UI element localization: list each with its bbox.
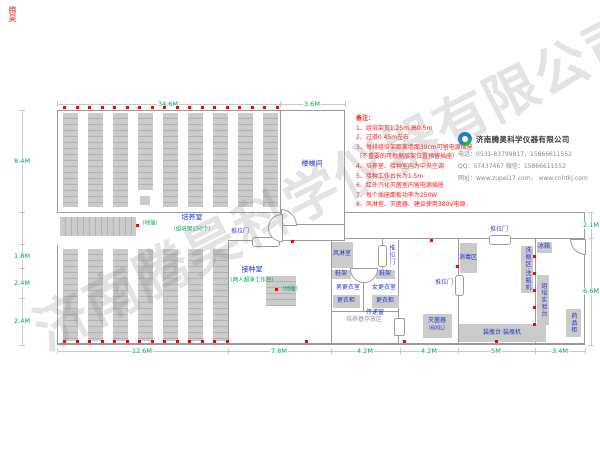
label-fridge: 冰箱: [538, 244, 550, 250]
power-outlet-dot: [495, 340, 498, 343]
wall: [228, 240, 345, 241]
room-sublabel-cultivation: （组培架150个）: [170, 227, 214, 233]
swing-door-arc: [350, 268, 378, 283]
power-outlet-dot: [201, 340, 204, 343]
shelf-rack: [113, 113, 128, 207]
wall: [57, 245, 58, 345]
power-outlet-dot: [188, 340, 191, 343]
label-floor-socket: （地插）: [139, 221, 161, 227]
power-outlet-dot: [533, 306, 536, 309]
power-outlet-dot: [291, 240, 294, 243]
sliding-door: [455, 275, 464, 296]
shelf-rack: [213, 249, 228, 341]
sliding-door: [489, 235, 511, 245]
dimension-line: [57, 104, 345, 105]
company-name: 济南腾昊科学仪器有限公司: [476, 134, 570, 145]
label-bottling-bench: 装瓶台·装瓶机: [483, 330, 521, 336]
dimension-tick: [19, 268, 25, 269]
floor-plan-canvas: 济南腾昊科学仪器有限公司 腾昊 34.6M 3.6M 8.4M: [0, 0, 600, 450]
label-disinfection-area: 消毒区: [459, 255, 477, 261]
wall: [363, 280, 364, 311]
power-outlet-dot: [275, 288, 278, 291]
room-label-air-shower: 风淋室: [333, 251, 351, 257]
power-outlet-dot: [430, 239, 433, 242]
dimension-tick: [345, 101, 346, 107]
swing-door-arc: [570, 239, 586, 255]
dimension-tick: [458, 348, 459, 354]
room-label-cultivation: 培养室: [182, 215, 203, 222]
note-line: 6、红外汽化灭菌室内留电源插座: [356, 183, 482, 189]
shelf-rack: [88, 249, 103, 341]
dimension-tick: [280, 101, 281, 107]
room-sublabel-inoculation: （两人超净工作台）: [227, 278, 277, 284]
corner-red-mark: 腾昊: [7, 6, 18, 22]
power-outlet-dot: [101, 340, 104, 343]
shelf-rack: [88, 113, 103, 207]
wall: [57, 343, 585, 345]
shelf-rack: [188, 113, 203, 207]
shelf-rack: [238, 113, 253, 207]
label-sliding-door: 推拉门: [435, 280, 453, 286]
note-line: 8、风淋室、灭菌器、建议使用380V电源.: [356, 202, 482, 208]
room-label-stairwell: 楼梯间: [302, 161, 323, 168]
power-outlet-dot: [403, 340, 406, 343]
power-outlet-dot: [533, 323, 536, 326]
dimension-tick: [588, 212, 594, 213]
room-label-inoculation: 接种室: [242, 267, 263, 274]
dim-label: 2.4M: [13, 280, 31, 287]
power-outlet-dot: [138, 340, 141, 343]
power-outlet-dot: [101, 106, 104, 109]
power-outlet-dot: [251, 106, 254, 109]
note-line: 7、每个插座面板功率为250W: [356, 193, 482, 199]
wall: [57, 110, 345, 111]
power-outlet-dot: [276, 106, 279, 109]
power-outlet-dot: [533, 272, 536, 275]
label-locker: 更衣柜: [337, 298, 355, 304]
company-qq-wechat: QQ：57437467 微信：15866611552: [458, 164, 590, 170]
dim-label: 2.4M: [13, 318, 31, 325]
label-sterilizer-spec: （600L）: [426, 327, 448, 332]
power-outlet-dot: [126, 106, 129, 109]
wall: [228, 240, 229, 344]
company-logo-icon: [458, 132, 472, 146]
dim-label: 3.6M: [303, 101, 321, 108]
wall-stairwell: [280, 110, 281, 225]
power-outlet-dot: [176, 106, 179, 109]
power-outlet-dot: [63, 106, 66, 109]
power-outlet-dot: [263, 106, 266, 109]
shelf-rack: [163, 113, 178, 207]
label-floor-socket: （地插）: [279, 287, 301, 293]
label-shoe-rack: 鞋架: [379, 271, 391, 277]
label-sliding-door: 推拉门: [388, 245, 394, 266]
dimension-tick: [331, 348, 332, 354]
label-sliding-door: 推拉门: [231, 229, 249, 235]
dim-label: 5M: [490, 348, 502, 355]
power-outlet-dot: [88, 106, 91, 109]
label-locker: 更衣柜: [376, 298, 394, 304]
power-outlet-dot: [113, 340, 116, 343]
power-outlet-dot: [63, 340, 66, 343]
wall: [584, 212, 585, 345]
label-bottle-washing: 洗瓶区·洗瓶机: [524, 247, 530, 292]
label-sterilizer: 灭菌器: [428, 318, 446, 324]
notes-title: 备注：: [356, 116, 482, 122]
power-outlet-dot: [533, 289, 536, 292]
power-outlet-dot: [113, 106, 116, 109]
dimension-tick: [400, 348, 401, 354]
dimension-tick: [535, 348, 536, 354]
power-outlet-dot: [305, 340, 308, 343]
shelf-rack: [63, 113, 78, 207]
wall: [57, 212, 281, 213]
company-phone: 电话：0531-83799817，15866611552: [458, 152, 590, 158]
dimension-tick: [19, 244, 25, 245]
dim-label: 3.4M: [551, 348, 569, 355]
wall-stairwell: [344, 110, 345, 241]
power-outlet-dot: [188, 106, 191, 109]
dimension-tick: [57, 101, 58, 107]
power-outlet-dot: [76, 106, 79, 109]
power-outlet-dot: [76, 340, 79, 343]
dim-label: 4.2M: [420, 348, 438, 355]
power-outlet-dot: [226, 106, 229, 109]
power-outlet-dot: [136, 224, 139, 227]
swing-door-arc: [281, 209, 297, 226]
shelf-rack: [138, 249, 153, 341]
power-outlet-dot: [176, 340, 179, 343]
company-watermark: 济南腾昊科学仪器有限公司: [18, 0, 600, 365]
label-tc-bench: 组培实验台: [540, 283, 546, 318]
dimension-tick: [585, 348, 586, 354]
dimension-tick: [57, 348, 58, 354]
dimension-line: [22, 110, 23, 345]
power-outlet-dot: [163, 340, 166, 343]
label-medium-storage: 培养基存放区: [346, 317, 382, 323]
dim-label: 6.6M: [582, 288, 600, 295]
dim-label: 2.1M: [582, 222, 600, 229]
dimension-line: [591, 212, 592, 345]
sliding-door: [378, 245, 387, 267]
dimension-tick: [588, 238, 594, 239]
power-outlet-dot: [456, 265, 459, 268]
dimension-tick: [19, 212, 25, 213]
pass-window-box: [394, 318, 405, 336]
room-label-womens-changing: 女更衣室: [372, 285, 396, 291]
power-outlet-dot: [226, 340, 229, 343]
shelf-rack: [113, 249, 128, 341]
wall: [345, 238, 584, 239]
shelf-rack: [263, 113, 278, 207]
dimension-tick: [19, 345, 25, 346]
shelf-rack: [213, 113, 228, 207]
shelf-rack: [163, 249, 178, 341]
power-outlet-dot: [238, 106, 241, 109]
power-outlet-dot: [213, 106, 216, 109]
wall: [331, 311, 398, 312]
room-label-mens-changing: 男更衣室: [336, 285, 360, 291]
note-line: 1、组培架宽1.25m,高0.5m: [356, 126, 482, 132]
dim-label: 12.6M: [131, 348, 153, 355]
dimension-tick: [228, 348, 229, 354]
shelf-rack: [188, 249, 203, 341]
power-outlet-dot: [163, 106, 166, 109]
power-outlet-dot: [138, 106, 141, 109]
power-outlet-dot: [126, 340, 129, 343]
shelf-rack: [138, 113, 153, 190]
wall: [57, 110, 58, 212]
power-outlet-dot: [151, 340, 154, 343]
dimension-tick: [588, 345, 594, 346]
shelf-rack: [140, 196, 150, 205]
power-outlet-dot: [151, 106, 154, 109]
label-sliding-door: 推拉门: [490, 227, 508, 233]
company-website: 网址：www.zupei17.com， www.cnhtkj.com: [458, 176, 590, 182]
power-outlet-dot: [201, 106, 204, 109]
dim-label: 8.4M: [13, 158, 31, 165]
power-outlet-dot: [88, 340, 91, 343]
dimension-tick: [19, 110, 25, 111]
dim-label: 1.8M: [13, 253, 31, 260]
dim-label: 4.2M: [356, 348, 374, 355]
dimension-tick: [19, 298, 25, 299]
wall: [345, 212, 584, 213]
shelf-rack-horizontal: [60, 217, 136, 236]
label-shoe-rack: 鞋架: [335, 271, 347, 277]
power-outlet-dot: [533, 255, 536, 258]
company-info-block: 济南腾昊科学仪器有限公司 电话：0531-83799817，1586661155…: [458, 132, 590, 182]
label-medicine-cabinet: 药品柜: [570, 313, 576, 334]
power-outlet-dot: [213, 340, 216, 343]
dim-label: 7.8M: [270, 348, 288, 355]
shelf-rack: [63, 249, 78, 341]
